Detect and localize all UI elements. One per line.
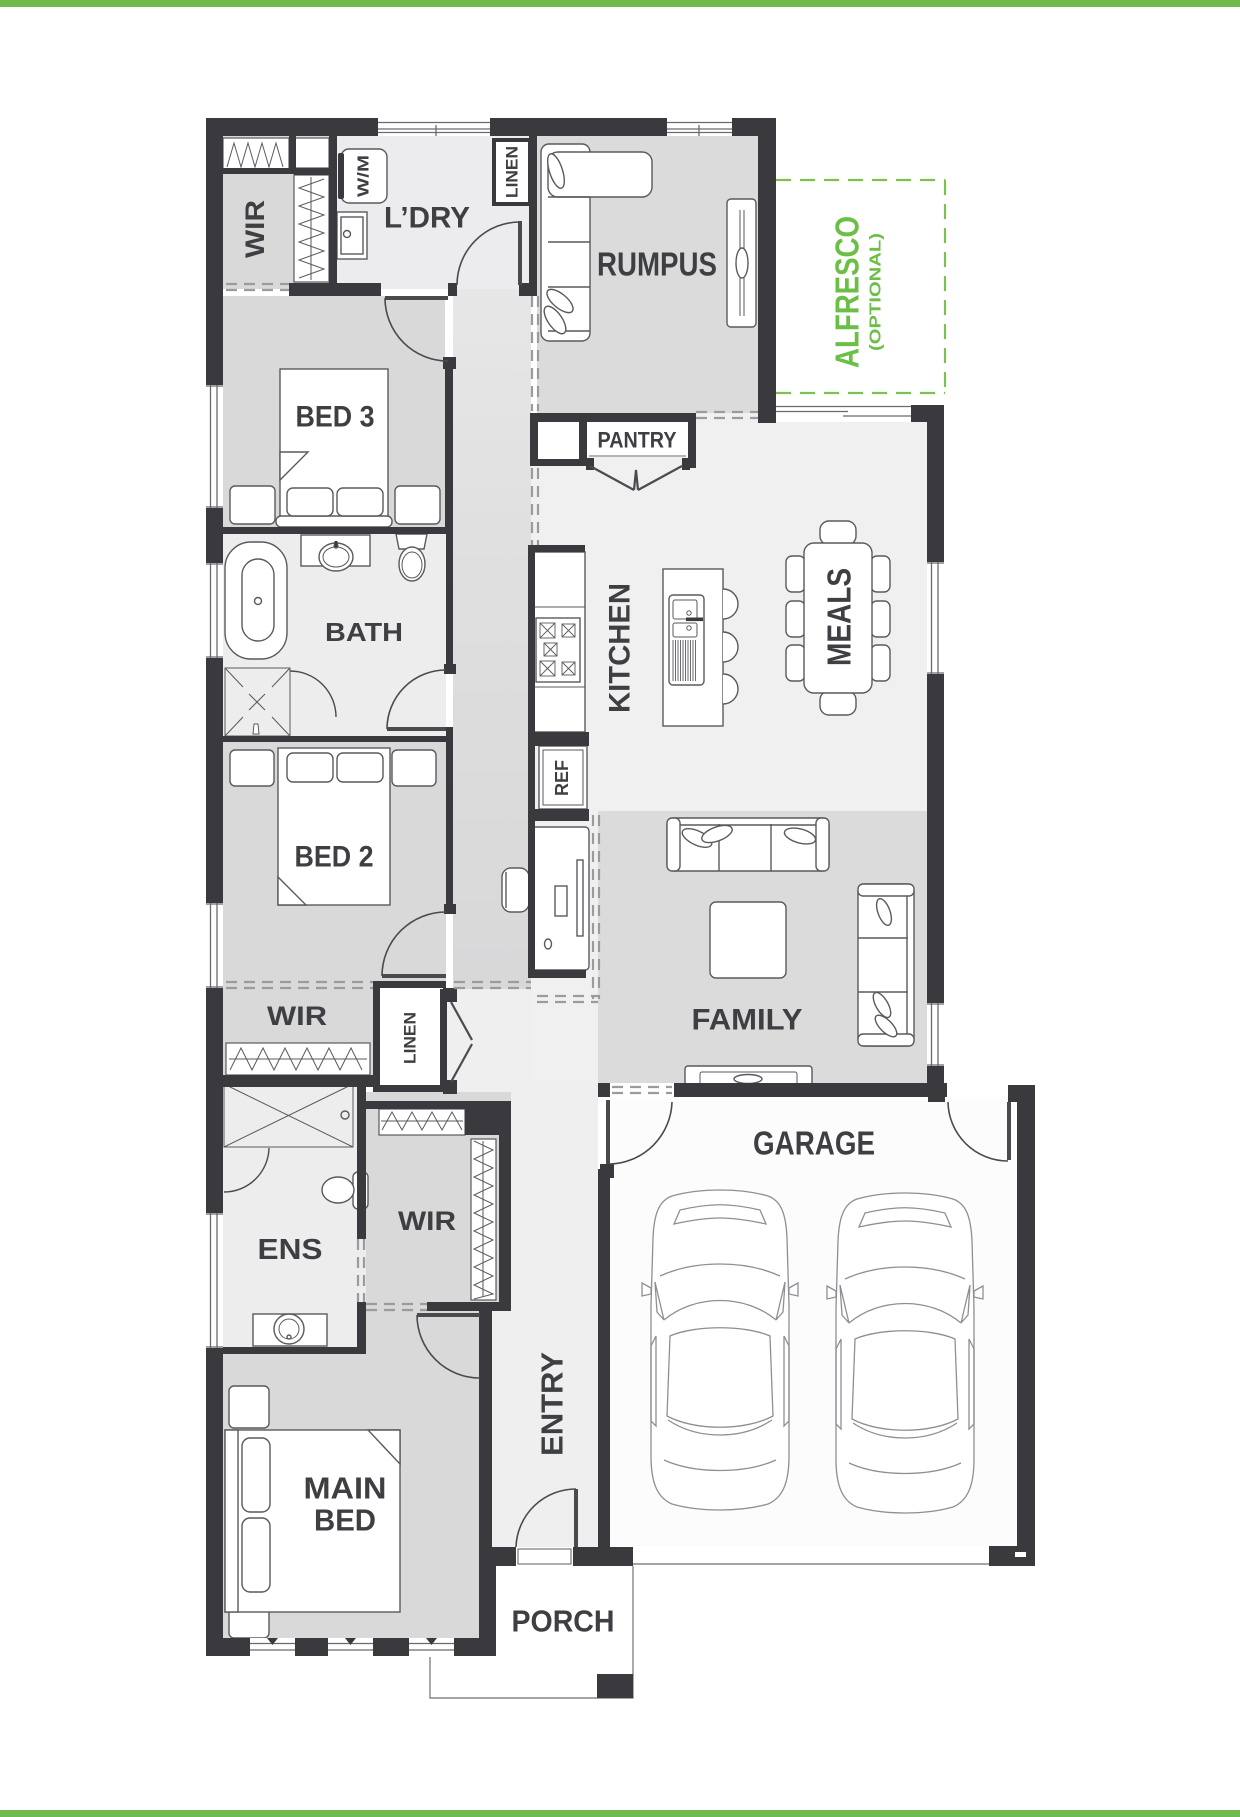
svg-text:ENS: ENS	[258, 1234, 323, 1266]
svg-text:FAMILY: FAMILY	[692, 1004, 803, 1037]
svg-text:L’DRY: L’DRY	[384, 202, 470, 235]
svg-text:BATH: BATH	[325, 617, 403, 647]
svg-text:ENTRY: ENTRY	[535, 1352, 570, 1456]
svg-text:LINEN: LINEN	[503, 146, 522, 198]
svg-text:WIR: WIR	[267, 1001, 327, 1031]
svg-text:PANTRY: PANTRY	[598, 428, 677, 453]
svg-text:MEALS: MEALS	[821, 568, 858, 666]
svg-text:BED 2: BED 2	[295, 841, 374, 874]
svg-text:GARAGE: GARAGE	[753, 1125, 875, 1162]
svg-text:KITCHEN: KITCHEN	[604, 583, 637, 713]
svg-text:BED 3: BED 3	[296, 401, 375, 434]
svg-text:WIR: WIR	[398, 1206, 456, 1236]
svg-text:PORCH: PORCH	[512, 1604, 615, 1639]
svg-text:WIR: WIR	[240, 200, 270, 258]
svg-text:RUMPUS: RUMPUS	[597, 246, 717, 283]
svg-text:MAIN: MAIN	[304, 1471, 387, 1506]
svg-text:ALFRESCO: ALFRESCO	[829, 216, 866, 368]
svg-text:BED: BED	[314, 1503, 376, 1538]
svg-text:REF: REF	[552, 760, 572, 796]
svg-text:LINEN: LINEN	[401, 1012, 420, 1064]
svg-text:W/M: W/M	[356, 155, 373, 197]
svg-text:(OPTIONAL): (OPTIONAL)	[868, 233, 885, 351]
